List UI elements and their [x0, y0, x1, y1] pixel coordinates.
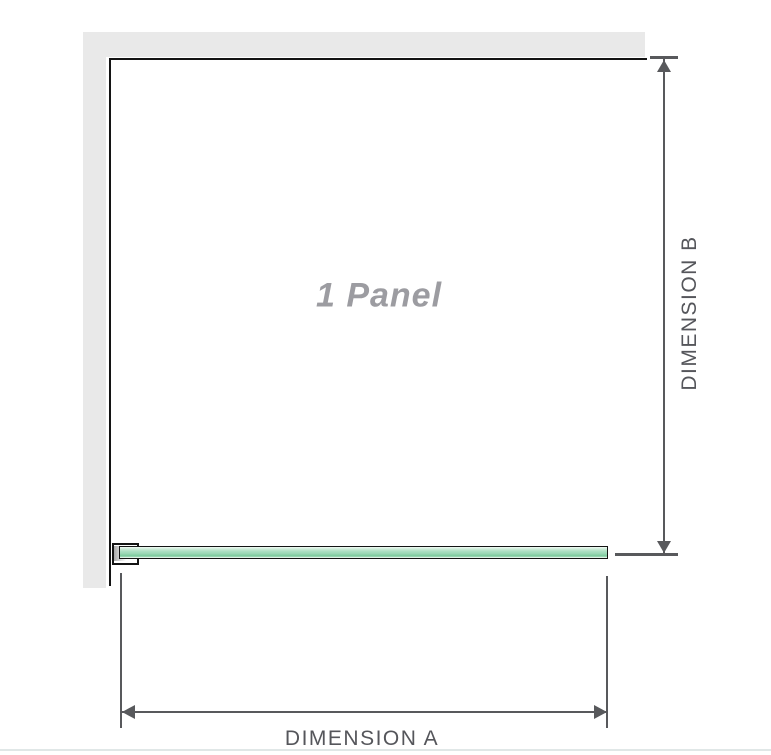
glass-panel-bar	[119, 546, 608, 559]
dimension-b-line	[663, 59, 665, 554]
diagram-canvas: 1 Panel DIMENSION B DIMENSION A	[0, 0, 771, 755]
dimension-b-bottom-cap	[615, 553, 678, 556]
panel-count-label: 1 Panel	[316, 277, 442, 316]
dimension-b-label: DIMENSION B	[678, 235, 702, 390]
panel-outline-left	[109, 58, 111, 586]
wall-strip-left	[83, 32, 106, 588]
panel-outline-top	[109, 58, 647, 60]
page-divider	[0, 749, 771, 751]
dimension-b-arrow-up-icon	[657, 60, 671, 72]
dimension-a-line	[122, 711, 607, 713]
wall-strip-top	[83, 32, 645, 57]
dimension-a-label: DIMENSION A	[285, 727, 439, 751]
dimension-a-arrow-right-icon	[594, 705, 607, 719]
dimension-a-arrow-left-icon	[122, 705, 135, 719]
dimension-b-arrow-down-icon	[657, 541, 671, 553]
dimension-b-top-cap	[650, 56, 678, 59]
